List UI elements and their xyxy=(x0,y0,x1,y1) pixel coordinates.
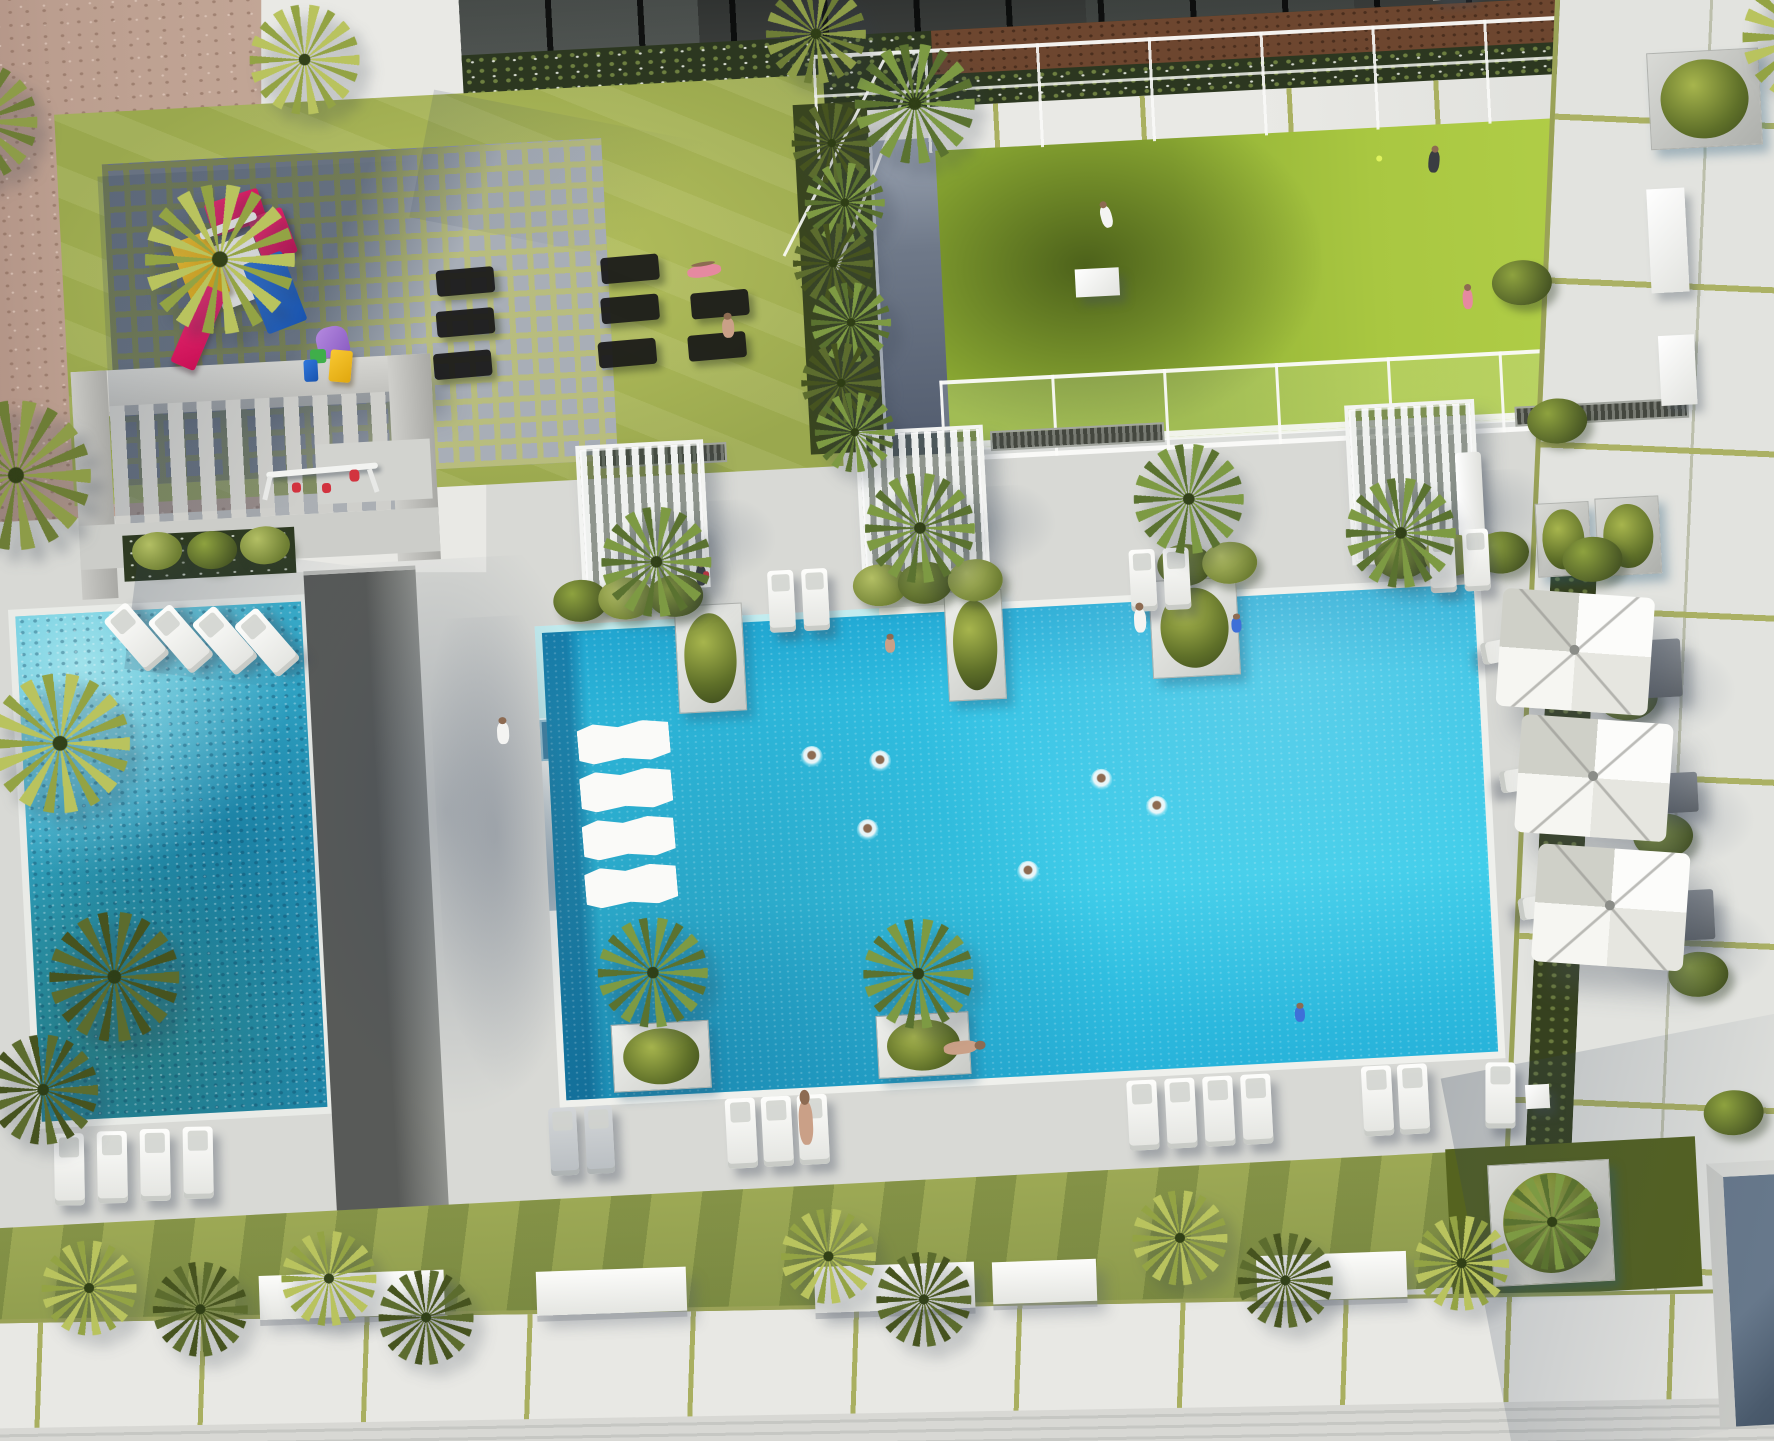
shrub xyxy=(897,560,954,605)
pergola-platform xyxy=(315,439,433,505)
sun-lounger xyxy=(1397,1063,1431,1134)
main-pool-water xyxy=(542,584,1498,1100)
sun-lounger xyxy=(1164,1077,1198,1148)
feature-wall xyxy=(303,565,449,1219)
sun-lounger xyxy=(725,1097,759,1168)
shrub xyxy=(1201,540,1258,585)
small-pool xyxy=(8,594,335,1129)
sun-lounger xyxy=(1361,1065,1395,1136)
shrub xyxy=(647,573,704,618)
shrub xyxy=(1373,535,1430,580)
main-pool xyxy=(535,577,1506,1108)
aerial-render-canvas xyxy=(0,0,1774,1441)
small-pool-water xyxy=(15,602,327,1122)
sun-lounger xyxy=(1202,1075,1236,1146)
pool-palm xyxy=(599,504,715,620)
shrub xyxy=(597,576,654,621)
person-in-robe xyxy=(497,722,510,745)
sun-lounger xyxy=(1126,1079,1160,1150)
sun-lounger xyxy=(97,1131,128,1204)
person-lying-lounger xyxy=(798,1100,814,1145)
shrub xyxy=(552,578,609,623)
pergola-planter xyxy=(122,527,296,582)
sun-lounger xyxy=(183,1126,214,1199)
palm-tree xyxy=(1343,475,1459,591)
shrub xyxy=(1423,533,1480,578)
sun-lounger xyxy=(796,1094,830,1165)
sun-lounger xyxy=(140,1129,171,1202)
pool-palm xyxy=(862,470,978,586)
pool-palm xyxy=(1131,441,1247,557)
cabana-shadow xyxy=(925,483,1059,576)
sun-lounger xyxy=(584,1105,616,1174)
cabana-shadow xyxy=(645,498,779,591)
sun-lounger xyxy=(761,1096,795,1167)
shrub xyxy=(947,558,1004,603)
shrub xyxy=(1156,543,1213,588)
backpack xyxy=(703,571,709,579)
sun-lounger xyxy=(54,1133,85,1206)
grass-patch xyxy=(1445,1136,1703,1299)
sun-lounger xyxy=(1240,1073,1274,1144)
shrub xyxy=(852,563,909,608)
shrub xyxy=(1473,530,1530,575)
walking-man xyxy=(696,565,707,585)
sun-lounger xyxy=(548,1107,580,1176)
scene xyxy=(0,0,1774,1441)
court-center-line xyxy=(951,451,962,606)
